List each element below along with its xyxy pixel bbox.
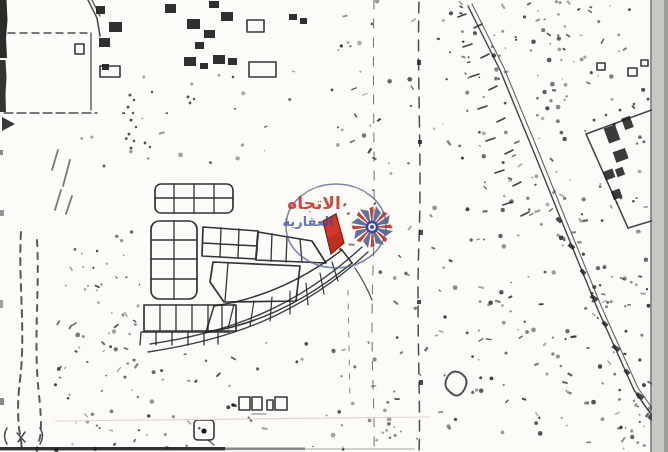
watermark-text-line2: العقارية <box>282 214 333 229</box>
map-image[interactable]: الاتجاه العقارية <box>0 0 668 452</box>
watermark-text-line1: الاتجاه <box>287 193 341 213</box>
scan-edge-right <box>650 0 668 452</box>
